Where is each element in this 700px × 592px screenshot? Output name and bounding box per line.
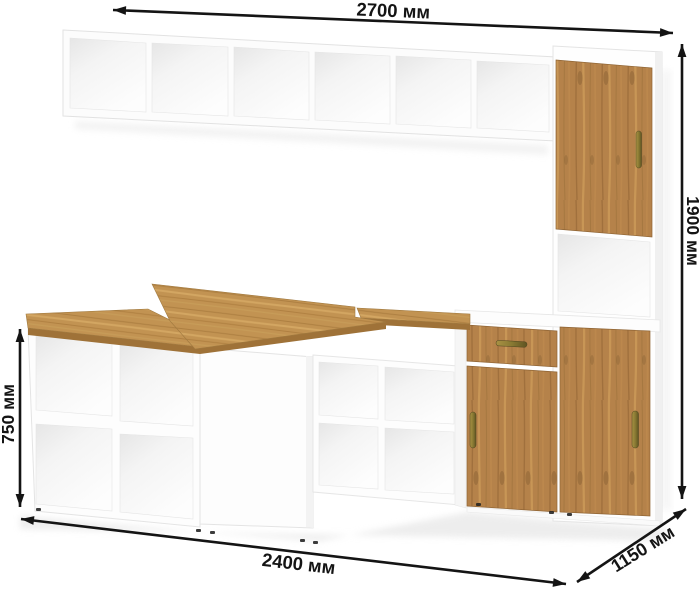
shelf-cubby <box>315 52 390 124</box>
dimension-label-bottom: 2400 мм <box>261 549 337 578</box>
door-handle <box>632 411 639 448</box>
foot <box>196 529 201 532</box>
tall-cabinet-side-shade <box>655 52 662 526</box>
middle-desk-shelf <box>313 355 460 505</box>
pedestal-edge-shade <box>306 356 313 528</box>
dimension-label-right: 1900 мм <box>683 196 700 266</box>
foot <box>549 511 554 514</box>
base-cabinet-left-side <box>455 322 466 508</box>
dimension-label-left: 750 мм <box>0 384 18 444</box>
desk-pedestal <box>200 348 313 528</box>
pedestal-panel <box>200 348 313 528</box>
tall-cabinet-open-cubby <box>558 234 650 317</box>
shelf-cubby <box>234 47 309 120</box>
furniture-product-image: 2700 мм 1900 мм 750 мм 2400 мм 1150 мм <box>0 0 700 592</box>
shelf-cubby <box>385 367 454 424</box>
shelf-cubby <box>396 56 471 128</box>
foot <box>567 513 572 516</box>
foot <box>210 531 215 534</box>
base-cabinet-left-door <box>467 366 557 512</box>
door-handle <box>636 131 642 168</box>
shelf-cubby <box>385 428 454 494</box>
left-desk-shelf <box>28 327 200 527</box>
shelf-cubby <box>70 38 146 112</box>
foot <box>36 508 41 511</box>
shelf-cubby <box>36 334 112 416</box>
shelf-cubby <box>36 424 112 511</box>
shelf-cubby <box>477 61 549 132</box>
shelf-cubby <box>120 342 193 426</box>
shelf-cubby <box>319 423 378 489</box>
foot <box>313 541 318 544</box>
dimension-label-top: 2700 мм <box>356 0 430 23</box>
foot <box>300 539 305 542</box>
door-handle <box>470 412 476 448</box>
shelf-cubby <box>319 362 378 419</box>
shelf-cubby <box>152 43 228 116</box>
wall-shadow-right <box>662 70 671 510</box>
foot <box>476 503 481 506</box>
furniture-dimension-scene: 2700 мм 1900 мм 750 мм 2400 мм 1150 мм <box>0 0 700 592</box>
shelf-cubby <box>120 434 193 519</box>
